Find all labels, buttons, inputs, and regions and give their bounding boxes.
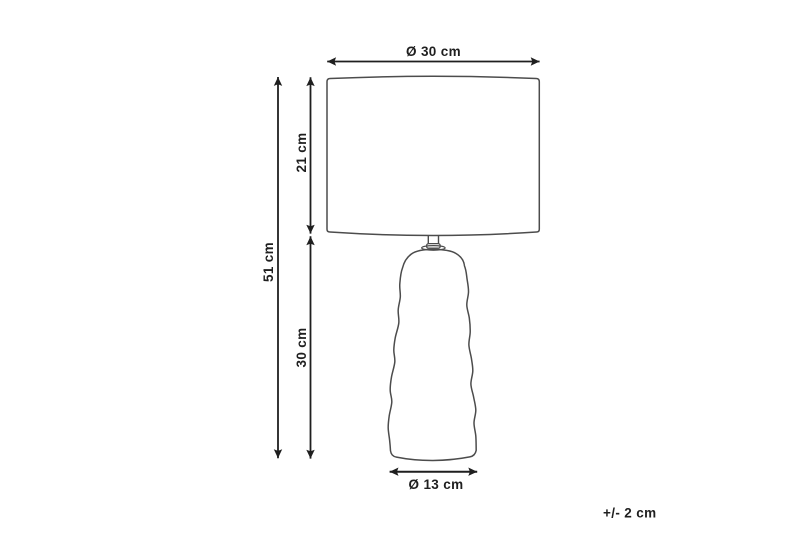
svg-text:51 cm: 51 cm: [261, 242, 276, 282]
svg-text:21 cm: 21 cm: [294, 132, 309, 172]
svg-text:+/- 2 cm: +/- 2 cm: [603, 506, 656, 521]
svg-text:Ø 13 cm: Ø 13 cm: [409, 477, 464, 492]
svg-text:30 cm: 30 cm: [294, 327, 309, 367]
svg-text:Ø 30 cm: Ø 30 cm: [406, 44, 461, 59]
